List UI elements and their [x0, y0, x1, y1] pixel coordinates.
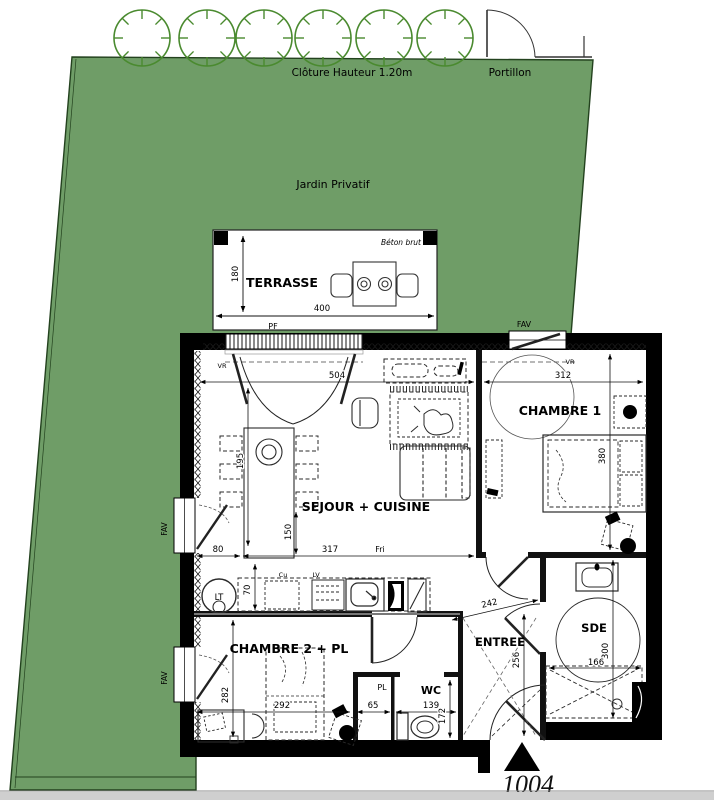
dim-166: 166 — [588, 658, 604, 668]
dim-312: 312 — [555, 371, 571, 381]
label-cooktop: Cu — [279, 571, 288, 579]
tree-icon — [295, 10, 351, 66]
dim-317: 317 — [322, 545, 338, 555]
drawing-border — [0, 791, 714, 800]
tree-icon — [417, 10, 473, 66]
dim-139: 139 — [423, 701, 439, 711]
gate-icon — [487, 10, 592, 57]
label-dishwasher: LV — [312, 571, 320, 579]
label-chambre1: CHAMBRE 1 — [519, 403, 602, 418]
tree-icon — [236, 10, 292, 66]
label-gate: Portillon — [489, 67, 532, 79]
dim-504: 504 — [329, 371, 345, 381]
label-chambre2: CHAMBRE 2 + PL — [230, 641, 349, 656]
dim-292: 292 — [274, 701, 290, 711]
label-fridge: Fri — [375, 545, 385, 554]
label-sejour: SEJOUR + CUISINE — [302, 499, 430, 514]
bay-window-pf — [225, 334, 363, 354]
dim-172: 172 — [438, 708, 448, 724]
label-fav-left-1: FAV — [160, 521, 169, 535]
label-pf: PF — [268, 322, 278, 331]
label-sde: SDE — [581, 621, 607, 635]
dim-terrace-width: 400 — [314, 304, 330, 314]
label-terrace: TERRASSE — [246, 275, 318, 290]
dim-380: 380 — [598, 448, 608, 464]
label-terrace-note: Béton brut — [381, 238, 422, 247]
dim-terrace-depth: 180 — [231, 266, 241, 282]
label-fav-left-2: FAV — [160, 670, 169, 684]
tree-icon — [179, 10, 235, 66]
floor-plan-svg: Clôture Hauteur 1.20m Portillon Jardin P… — [0, 0, 714, 800]
floor-plan-page: Clôture Hauteur 1.20m Portillon Jardin P… — [0, 0, 714, 800]
label-washer: LT — [215, 593, 225, 603]
label-fence: Clôture Hauteur 1.20m — [292, 67, 413, 79]
dim-80: 80 — [213, 545, 224, 555]
dim-256: 256 — [512, 652, 522, 668]
dim-282: 282 — [221, 687, 231, 703]
entrance-marker-icon — [504, 742, 540, 771]
label-garden: Jardin Privatif — [295, 178, 370, 191]
dim-65: 65 — [368, 701, 379, 711]
tree-icon — [114, 10, 170, 66]
label-vr-right: VR — [566, 358, 575, 366]
label-entree: ENTREE — [475, 635, 525, 649]
window-fav-top — [509, 331, 566, 349]
dim-150: 150 — [284, 524, 294, 540]
label-wc: WC — [421, 684, 441, 697]
dim-70: 70 — [243, 585, 253, 596]
label-fav-top: FAV — [517, 320, 532, 329]
label-pl: PL — [377, 683, 387, 692]
label-vr-left: VR — [218, 362, 227, 370]
dim-300: 300 — [601, 643, 611, 659]
tree-icon — [356, 10, 412, 66]
dim-195: 195 — [236, 453, 246, 469]
